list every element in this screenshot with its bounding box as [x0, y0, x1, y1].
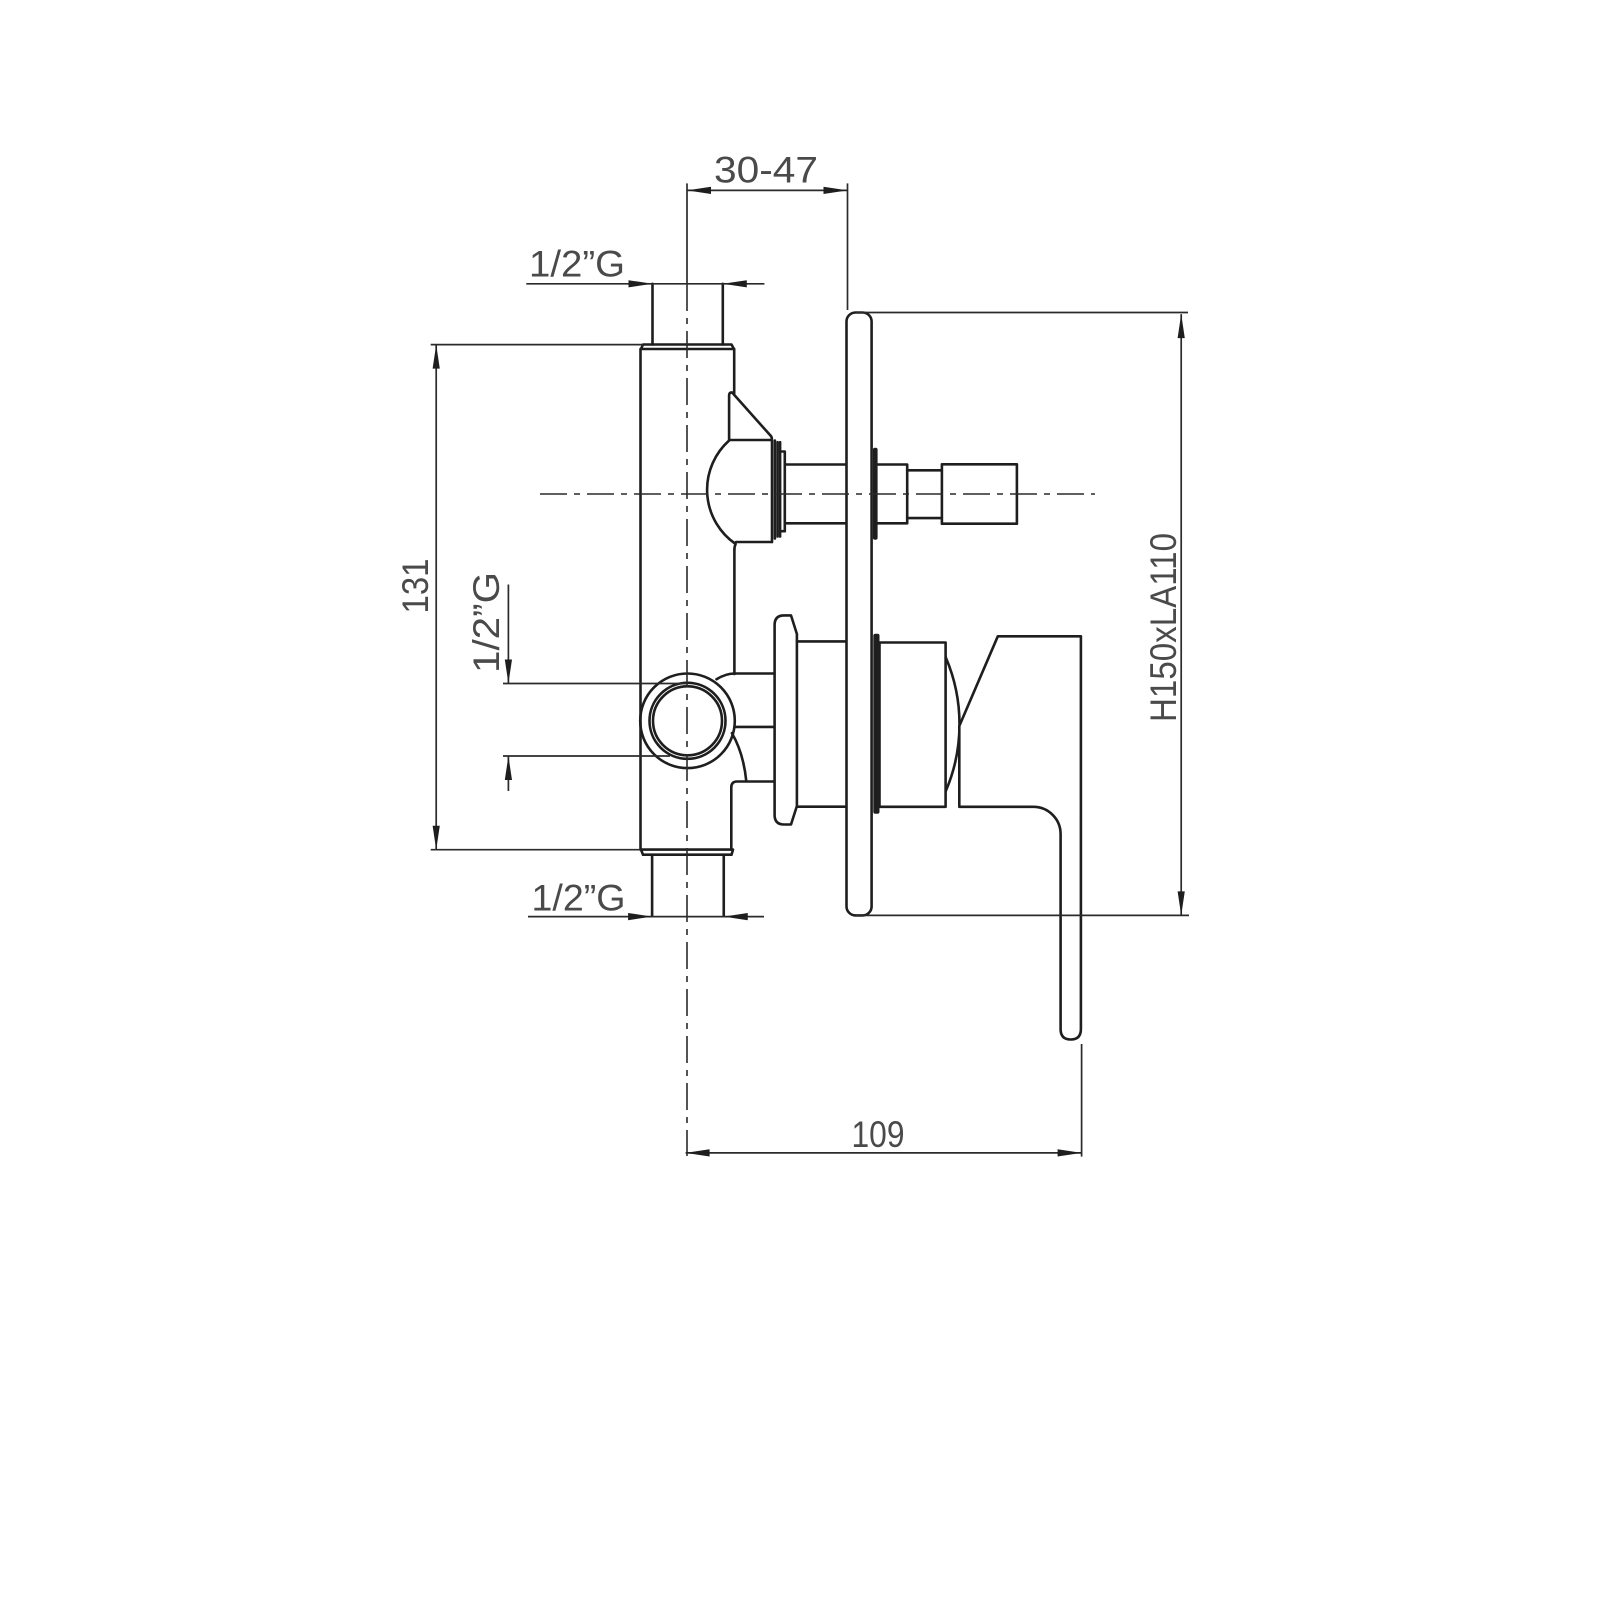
- svg-text:30-47: 30-47: [714, 150, 818, 191]
- svg-text:1/2”G: 1/2”G: [466, 572, 507, 673]
- svg-text:1/2”G: 1/2”G: [529, 244, 625, 285]
- svg-text:H150xLA110: H150xLA110: [1143, 533, 1184, 722]
- svg-text:109: 109: [852, 1114, 905, 1155]
- svg-text:1/2”G: 1/2”G: [532, 878, 626, 919]
- svg-text:131: 131: [395, 559, 436, 614]
